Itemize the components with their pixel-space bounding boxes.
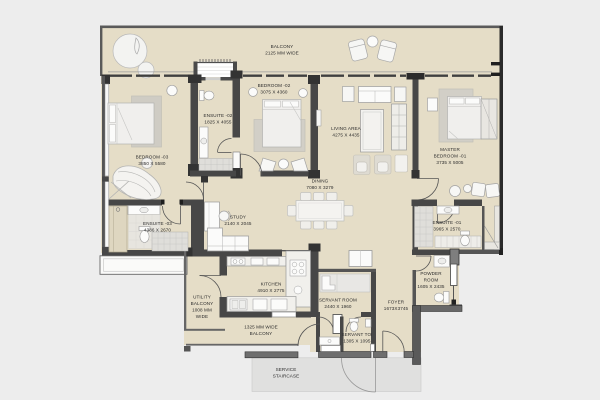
svg-text:3965 X 2570: 3965 X 2570 — [433, 227, 461, 232]
svg-text:MASTER: MASTER — [440, 147, 460, 152]
svg-text:1605 X 2435: 1605 X 2435 — [417, 284, 445, 289]
svg-text:BALCONY: BALCONY — [250, 331, 273, 336]
svg-text:KITCHEN: KITCHEN — [261, 282, 282, 287]
svg-text:BALCONY: BALCONY — [191, 301, 214, 306]
svg-text:DINING: DINING — [312, 179, 329, 184]
svg-text:BEDROOM -02: BEDROOM -02 — [258, 83, 291, 88]
svg-text:ROOM: ROOM — [424, 278, 439, 283]
svg-text:3735 X 5005: 3735 X 5005 — [436, 160, 464, 165]
svg-text:7080 X 3279: 7080 X 3279 — [306, 185, 334, 190]
svg-text:1325 MM WIDE: 1325 MM WIDE — [244, 325, 278, 330]
svg-text:SERVANT TOI: SERVANT TOI — [341, 332, 372, 337]
svg-text:POWDER: POWDER — [420, 271, 442, 276]
svg-text:LIVING AREA: LIVING AREA — [331, 126, 362, 131]
svg-text:1825 X 4055: 1825 X 4055 — [204, 120, 232, 125]
svg-text:4275 X 4435: 4275 X 4435 — [332, 133, 360, 138]
svg-text:STUDY: STUDY — [230, 215, 246, 220]
svg-text:ENSUITE -02: ENSUITE -02 — [204, 113, 233, 118]
svg-text:SERVANT ROOM: SERVANT ROOM — [319, 298, 357, 303]
svg-text:4910 X 2775: 4910 X 2775 — [257, 288, 285, 293]
svg-text:BEDROOM -01: BEDROOM -01 — [434, 154, 467, 159]
svg-text:3075 X 4360: 3075 X 4360 — [260, 90, 288, 95]
svg-text:WIDE: WIDE — [196, 314, 208, 319]
svg-text:2440 X 1960: 2440 X 1960 — [324, 304, 352, 309]
svg-text:ENSUITE -03: ENSUITE -03 — [143, 221, 172, 226]
svg-text:SERVICE: SERVICE — [276, 367, 297, 372]
svg-text:2140 X 2045: 2140 X 2045 — [224, 221, 252, 226]
svg-text:FOYER: FOYER — [388, 300, 405, 305]
svg-text:BEDROOM -03: BEDROOM -03 — [136, 155, 169, 160]
svg-text:UTILITY: UTILITY — [193, 295, 211, 300]
svg-text:1305 X 1095: 1305 X 1095 — [343, 339, 371, 344]
svg-text:1673X3745: 1673X3745 — [384, 306, 409, 311]
svg-text:BALCONY: BALCONY — [271, 44, 294, 49]
svg-text:3850 X 5580: 3850 X 5580 — [138, 161, 166, 166]
svg-text:STAIRCASE: STAIRCASE — [273, 374, 300, 379]
svg-text:1008 MM: 1008 MM — [192, 308, 212, 313]
svg-text:2125 MM WIDE: 2125 MM WIDE — [265, 51, 299, 56]
svg-text:ENSUITE -01: ENSUITE -01 — [433, 220, 462, 225]
svg-text:4386 X 2670: 4386 X 2670 — [144, 228, 172, 233]
